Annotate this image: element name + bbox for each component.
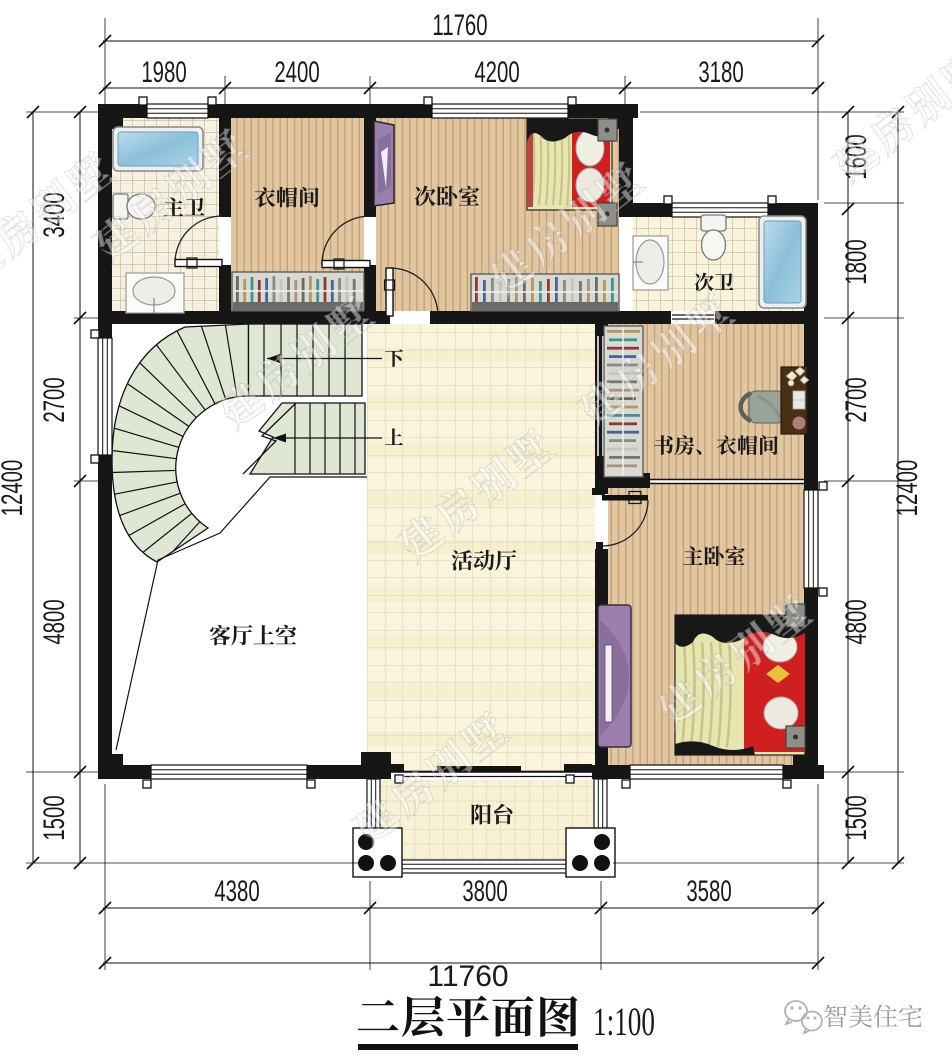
svg-text:1500: 1500	[38, 795, 71, 840]
svg-text:3180: 3180	[698, 56, 743, 89]
svg-text:2400: 2400	[274, 56, 319, 89]
svg-text:4800: 4800	[840, 599, 873, 644]
svg-text:11760: 11760	[432, 9, 487, 42]
svg-text:12400: 12400	[0, 460, 29, 517]
svg-text:1800: 1800	[840, 239, 873, 284]
svg-text:12400: 12400	[891, 460, 924, 517]
svg-text:2700: 2700	[840, 377, 873, 422]
svg-text:1500: 1500	[840, 795, 873, 840]
svg-text:3800: 3800	[462, 875, 507, 908]
svg-text:3580: 3580	[686, 875, 731, 908]
svg-text:2700: 2700	[38, 377, 71, 422]
svg-text:1980: 1980	[141, 56, 186, 89]
svg-text:4800: 4800	[38, 599, 71, 644]
svg-text:4200: 4200	[474, 56, 519, 89]
svg-text:4380: 4380	[214, 875, 259, 908]
svg-text:1:100: 1:100	[593, 1001, 655, 1044]
svg-text:11760: 11760	[427, 960, 508, 993]
